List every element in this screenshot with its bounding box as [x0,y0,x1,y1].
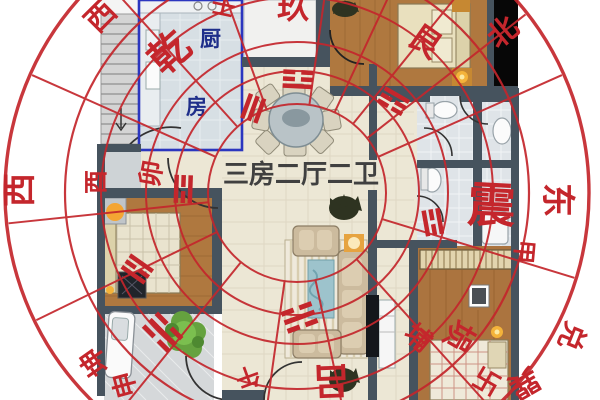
svg-text:三房二厅二卫: 三房二厅二卫 [223,159,379,189]
svg-text:厨: 厨 [200,28,221,51]
svg-text:甲: 甲 [509,239,538,265]
svg-text:酉: 酉 [83,170,110,194]
svg-text:吕: 吕 [312,359,350,400]
svg-text:卯: 卯 [134,158,168,189]
svg-text:西: 西 [1,173,39,207]
svg-text:玖: 玖 [277,0,309,25]
svg-text:震: 震 [466,179,517,234]
svg-text:东: 东 [538,183,577,217]
